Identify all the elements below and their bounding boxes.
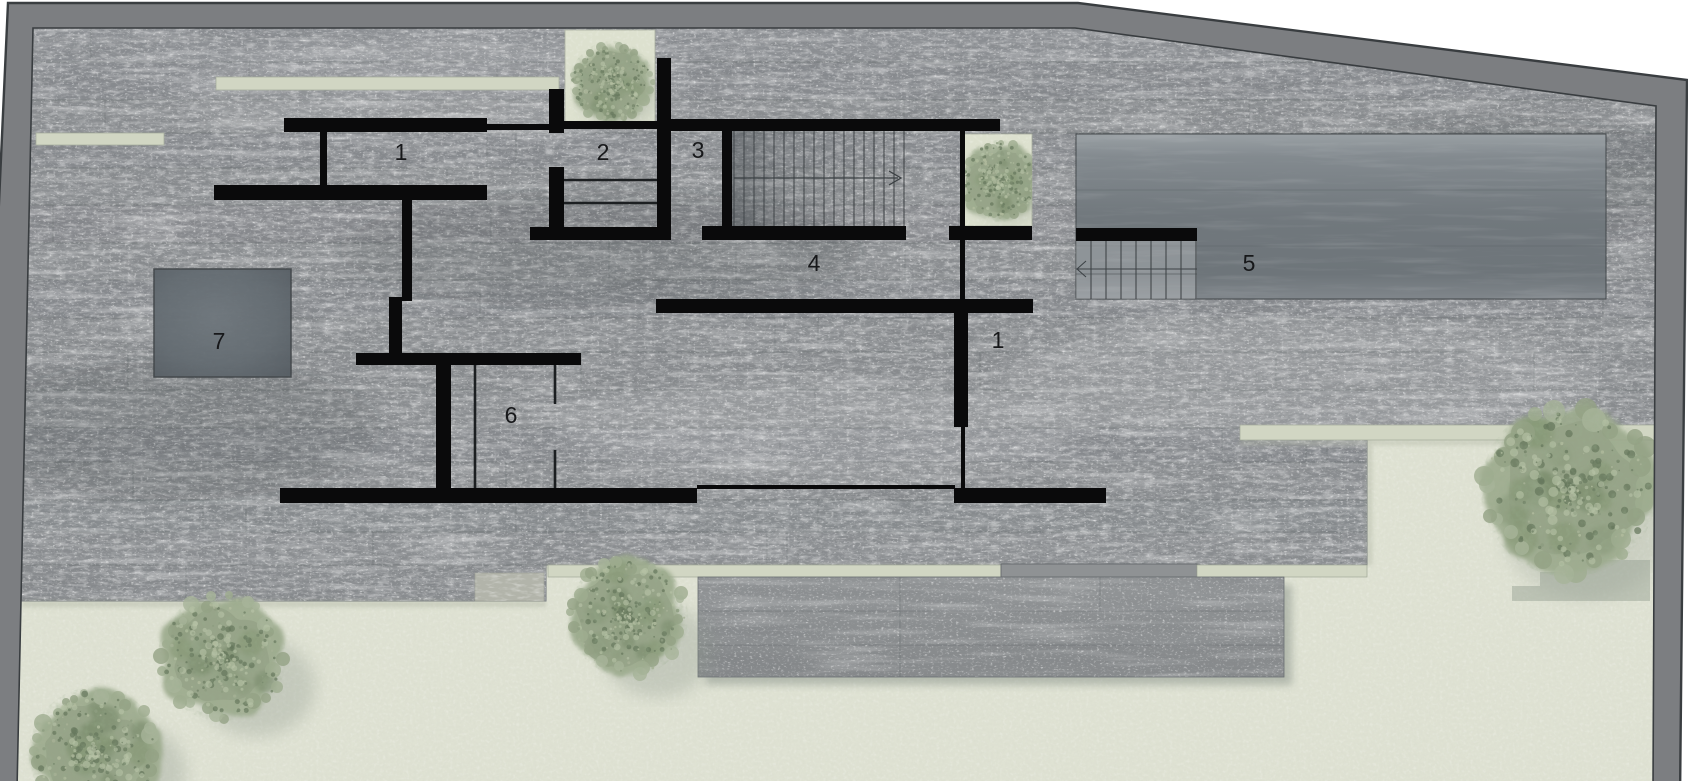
svg-text:6: 6 [505,402,518,428]
svg-text:4: 4 [808,250,821,276]
svg-text:1: 1 [395,139,408,165]
svg-text:2: 2 [597,139,610,165]
svg-text:1: 1 [992,327,1005,353]
svg-text:7: 7 [213,328,226,354]
svg-text:3: 3 [692,137,705,163]
svg-text:5: 5 [1243,250,1256,276]
